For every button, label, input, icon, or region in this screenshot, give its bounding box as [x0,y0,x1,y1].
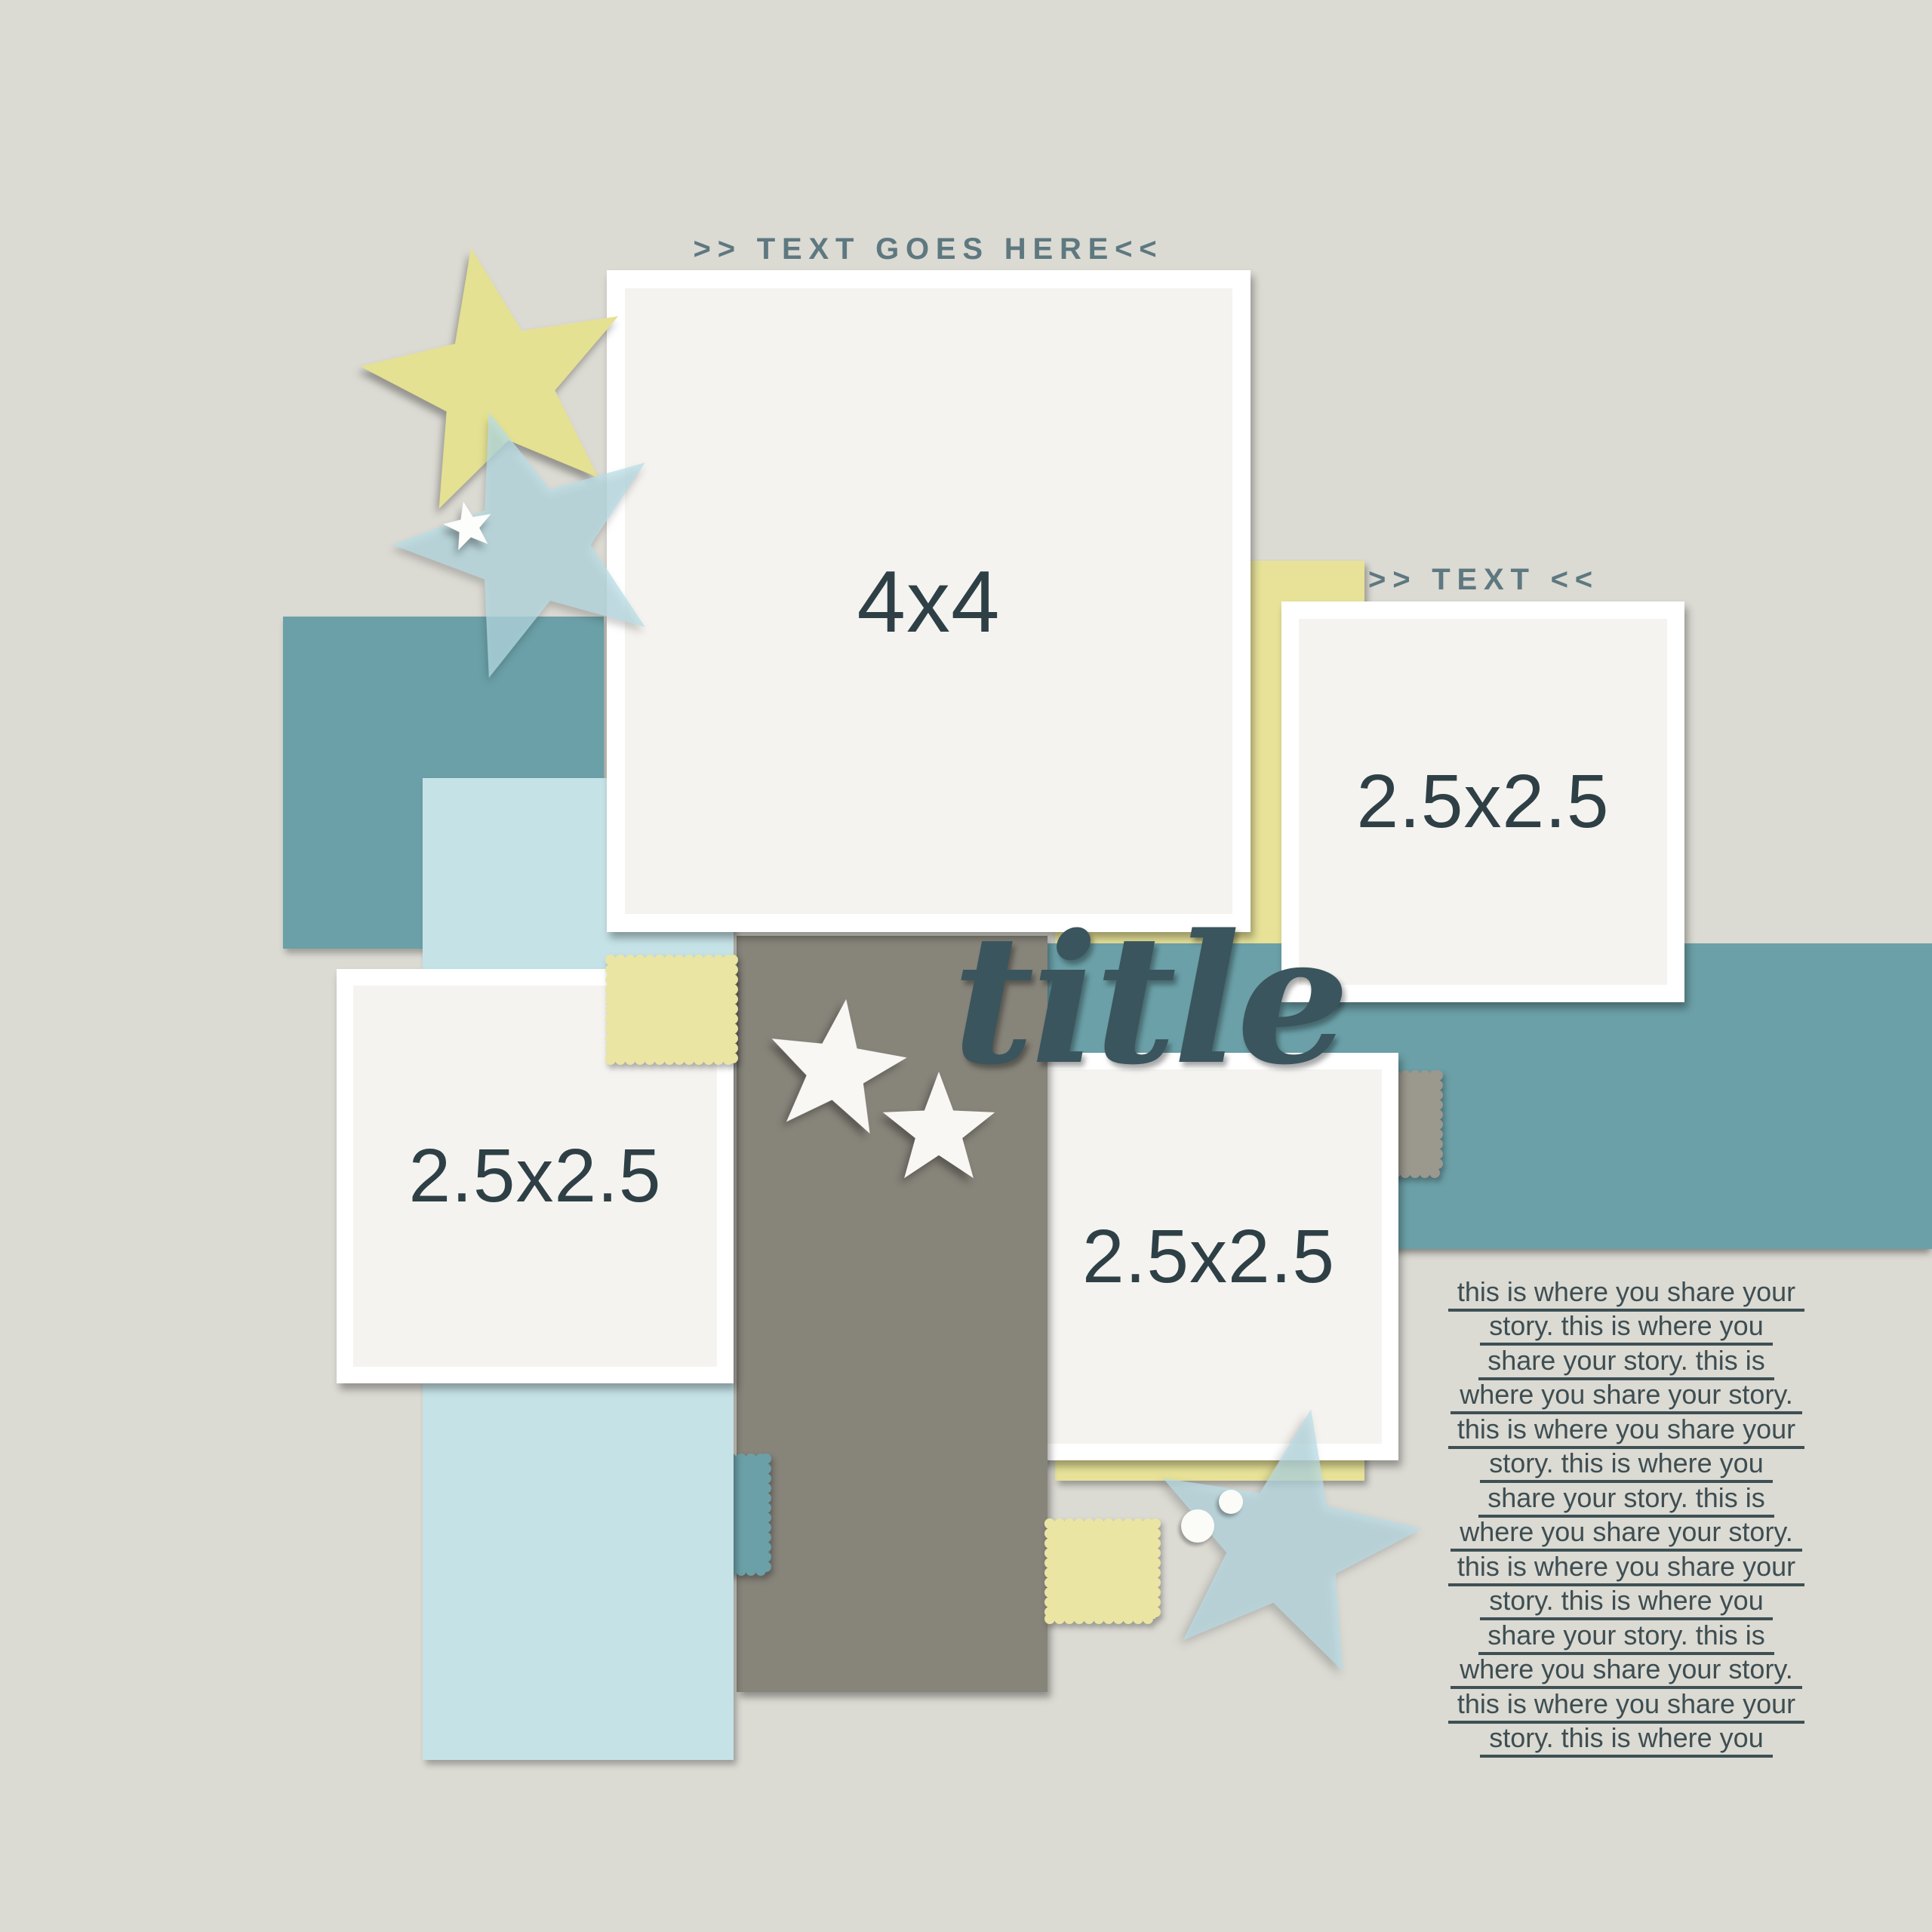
photo-frame-4x4[interactable]: 4x4 [607,270,1251,932]
blue-star-icon [1121,1383,1447,1708]
journal-line: share your story. this is [1445,1483,1807,1518]
title-placeholder[interactable]: title [952,912,1346,1089]
white-dot-icon [1181,1509,1214,1543]
journal-line: this is where you share your [1445,1552,1807,1586]
journal-line: this is where you share your [1445,1689,1807,1724]
photo-size-label: 4x4 [857,551,1000,652]
photo-placeholder-4x4[interactable]: 4x4 [625,288,1232,914]
journal-line: story. this is where you [1445,1586,1807,1621]
journal-line: this is where you share your [1445,1414,1807,1449]
white-dot-icon [1219,1490,1243,1514]
journal-line: where you share your story. [1445,1655,1807,1690]
journal-line: where you share your story. [1445,1380,1807,1415]
scrapbook-template-canvas: 2.5x2.5 2.5x2.5 4x4 2.5x2.5 >> TEXT GOES… [0,0,1932,1932]
photo-size-label: 2.5x2.5 [1082,1214,1335,1300]
top-text-placeholder[interactable]: >> TEXT GOES HERE<< [694,232,1164,266]
journal-line: share your story. this is [1445,1620,1807,1655]
journal-line: story. this is where you [1445,1312,1807,1346]
journal-line: share your story. this is [1445,1346,1807,1380]
journal-line: story. this is where you [1445,1724,1807,1758]
right-text-placeholder[interactable]: >> TEXT << [1368,563,1599,597]
journal-line: where you share your story. [1445,1518,1807,1552]
journal-block[interactable]: this is where you share your story. this… [1445,1277,1807,1758]
photo-placeholder-center[interactable]: 2.5x2.5 [1035,1069,1382,1444]
white-star-icon [438,497,500,558]
photo-placeholder-right[interactable]: 2.5x2.5 [1299,619,1667,985]
journal-line: this is where you share your [1445,1277,1807,1312]
yellow-stamp-icon [605,955,738,1065]
journal-line: story. this is where you [1445,1449,1807,1484]
photo-size-label: 2.5x2.5 [1356,758,1609,845]
photo-size-label: 2.5x2.5 [408,1133,661,1220]
